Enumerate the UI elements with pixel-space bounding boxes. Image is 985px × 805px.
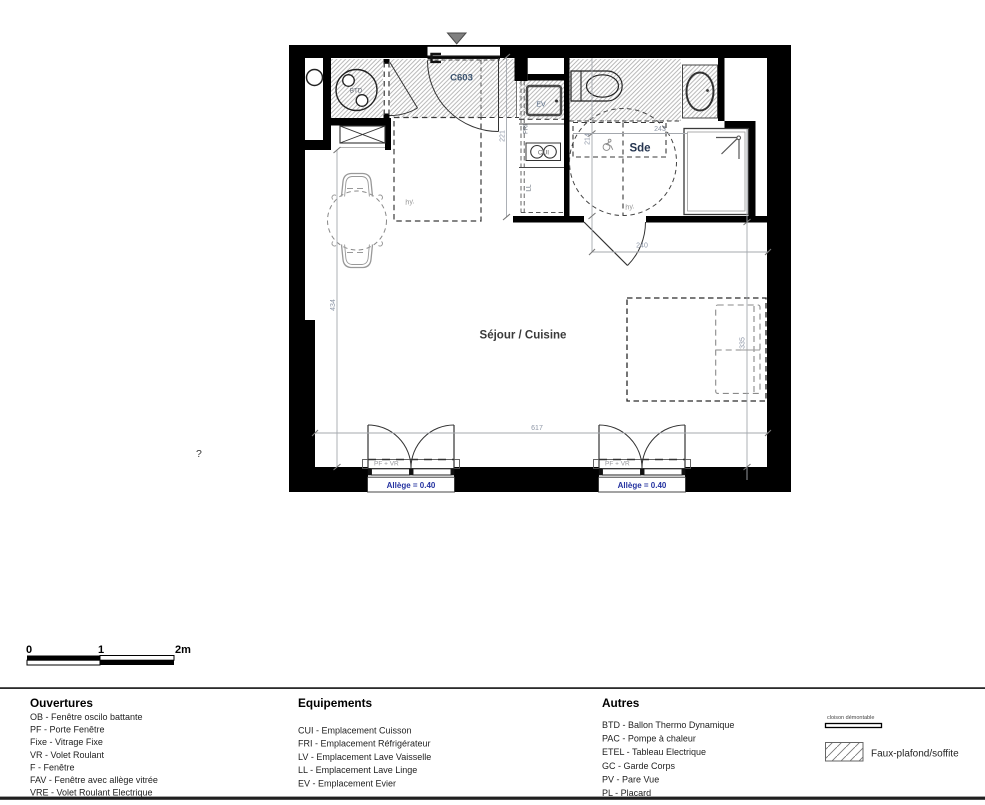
svg-text:214: 214 [585,133,592,145]
svg-text:FAV - Fenêtre avec allège vitr: FAV - Fenêtre avec allège vitrée [30,775,158,785]
svg-text:?: ? [196,448,202,460]
svg-text:240: 240 [636,243,648,250]
svg-text:221: 221 [500,130,507,142]
svg-text:EV: EV [536,102,546,109]
svg-text:PF + VR: PF + VR [374,460,399,467]
svg-text:1: 1 [98,644,104,656]
svg-text:CUI: CUI [538,150,549,157]
svg-text:EV - Emplacement Evier: EV - Emplacement Evier [298,778,396,788]
svg-text:PAC - Pompe à chaleur: PAC - Pompe à chaleur [602,734,696,744]
svg-text:LL: LL [526,184,533,192]
svg-text:Sde: Sde [629,143,650,155]
svg-text:0: 0 [26,644,32,656]
svg-text:cloison démontable: cloison démontable [827,715,874,721]
svg-text:PF + VR: PF + VR [605,460,630,467]
svg-text:243: 243 [654,126,666,133]
svg-text:FRI - Emplacement Réfrigérateu: FRI - Emplacement Réfrigérateur [298,739,431,749]
svg-text:hy.: hy. [404,196,415,207]
svg-text:2m: 2m [175,644,191,656]
svg-text:VR - Volet Roulant: VR - Volet Roulant [30,750,105,760]
svg-text:Allège = 0.40: Allège = 0.40 [618,481,667,490]
svg-text:OB - Fenêtre oscilo battante: OB - Fenêtre oscilo battante [30,712,143,722]
svg-text:PL - Placard: PL - Placard [602,788,651,798]
svg-text:GC - Garde Corps: GC - Garde Corps [602,761,676,771]
svg-text:C603: C603 [450,73,473,84]
svg-text:LV - Emplacement Lave Vaissell: LV - Emplacement Lave Vaisselle [298,752,431,762]
svg-text:PV - Pare Vue: PV - Pare Vue [602,774,659,784]
svg-text:LL - Emplacement Lave Linge: LL - Emplacement Lave Linge [298,765,417,775]
svg-text:Allège = 0.40: Allège = 0.40 [387,481,436,490]
svg-text:PF - Porte Fenêtre: PF - Porte Fenêtre [30,725,105,735]
svg-text:617: 617 [531,425,543,432]
svg-text:Autres: Autres [602,696,640,710]
svg-text:CUI - Emplacement Cuisson: CUI - Emplacement Cuisson [298,726,412,736]
svg-text:434: 434 [330,299,337,311]
svg-text:Equipements: Equipements [298,696,373,710]
svg-text:BTD - Ballon Thermo Dynamique: BTD - Ballon Thermo Dynamique [602,720,734,730]
svg-text:335: 335 [740,337,747,349]
svg-text:Séjour / Cuisine: Séjour / Cuisine [480,330,567,342]
svg-text:VRE - Volet Roulant Electrique: VRE - Volet Roulant Electrique [30,788,153,798]
svg-text:hy.: hy. [624,201,635,212]
svg-text:Fixe - Vitrage Fixe: Fixe - Vitrage Fixe [30,737,103,747]
svg-text:ETEL - Tableau Electrique: ETEL - Tableau Electrique [602,747,706,757]
svg-text:F - Fenêtre: F - Fenêtre [30,762,75,772]
svg-text:Faux-plafond/soffite: Faux-plafond/soffite [871,749,959,760]
svg-text:FRI: FRI [524,124,530,134]
svg-text:Ouvertures: Ouvertures [30,696,93,710]
svg-text:BTD: BTD [350,88,363,95]
